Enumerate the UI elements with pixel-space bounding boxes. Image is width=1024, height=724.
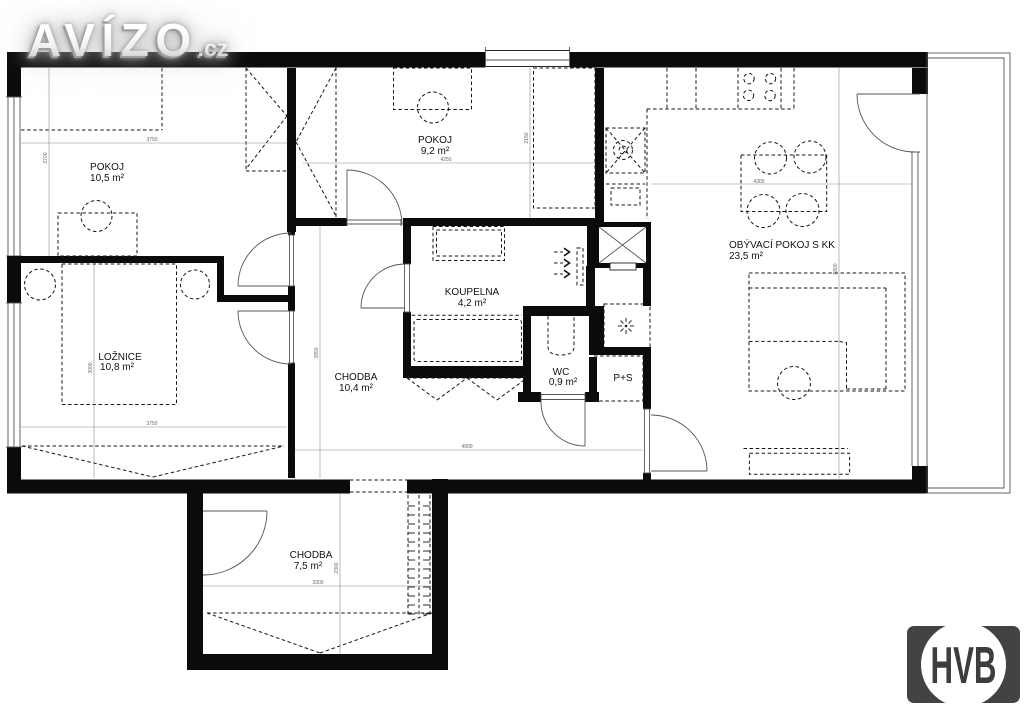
svg-text:0,9 m²: 0,9 m² [549,377,578,388]
svg-text:KOUPELNA: KOUPELNA [445,287,500,298]
svg-text:10,8 m²: 10,8 m² [100,362,135,373]
svg-text:10,5 m²: 10,5 m² [90,173,125,184]
svg-text:7,5 m²: 7,5 m² [294,561,323,572]
svg-text:3000: 3000 [88,362,94,373]
svg-text:3750: 3750 [146,421,157,427]
svg-text:2700: 2700 [43,152,49,163]
svg-text:4,2 m²: 4,2 m² [458,298,487,309]
svg-text:HVB: HVB [931,637,997,695]
svg-text:POKOJ: POKOJ [418,135,452,146]
svg-text:P+S: P+S [613,373,633,384]
svg-text:4300: 4300 [753,179,764,185]
svg-text:CHODBA: CHODBA [335,372,378,383]
svg-text:3300: 3300 [312,580,323,586]
svg-text:POKOJ: POKOJ [90,162,124,173]
svg-text:2300: 2300 [334,562,340,573]
svg-text:23,5 m²: 23,5 m² [729,251,764,262]
svg-text:5800: 5800 [833,263,839,274]
svg-text:OBÝVACÍ POKOJ S KK: OBÝVACÍ POKOJ S KK [729,238,835,251]
svg-text:9,2 m²: 9,2 m² [421,146,450,157]
svg-text:3850: 3850 [314,347,320,358]
svg-text:CHODBA: CHODBA [290,550,333,561]
svg-text:4900: 4900 [461,444,472,450]
svg-text:10,4 m²: 10,4 m² [339,383,374,394]
svg-text:4250: 4250 [440,157,451,163]
svg-text:3750: 3750 [146,137,157,143]
svg-text:2150: 2150 [524,132,530,143]
